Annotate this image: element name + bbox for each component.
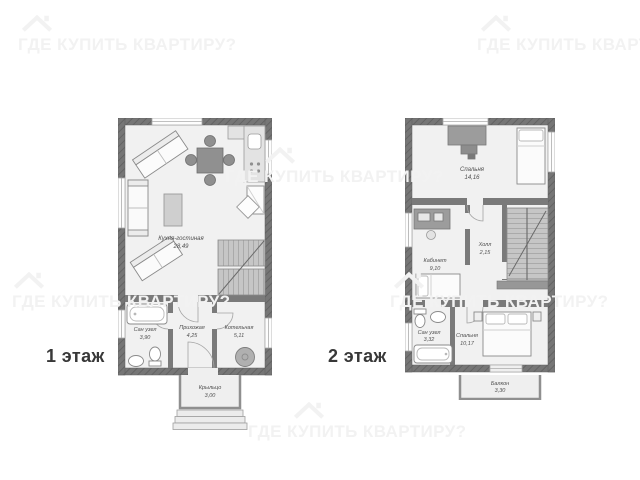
sink	[129, 356, 144, 367]
porch-steps	[173, 410, 247, 430]
svg-text:Котельная: Котельная	[225, 325, 254, 331]
svg-text:Спальня: Спальня	[456, 333, 478, 339]
house-icon	[479, 13, 513, 33]
svg-text:2,15: 2,15	[479, 250, 492, 256]
watermark-text: ГДЕ КУПИТЬ КВАРТИРУ?	[477, 35, 640, 55]
svg-text:14,16: 14,16	[464, 175, 480, 181]
watermark: ГДЕ КУПИТЬ КВАРТИРУ?	[477, 13, 640, 55]
svg-text:4,25: 4,25	[187, 333, 199, 339]
svg-text:28,49: 28,49	[172, 244, 189, 250]
watermark-text: ГДЕ КУПИТЬ КВАРТИРУ?	[18, 35, 236, 55]
house-icon	[20, 13, 54, 33]
toilet	[149, 347, 161, 366]
svg-text:3,90: 3,90	[140, 335, 152, 341]
nightstand	[533, 312, 541, 321]
sofa	[128, 180, 148, 236]
bathtub	[127, 304, 167, 324]
svg-text:Прихожая: Прихожая	[179, 325, 205, 331]
boiler	[236, 348, 255, 367]
dining-chair	[186, 155, 197, 166]
svg-text:Балкон: Балкон	[491, 381, 509, 387]
svg-text:Кухня-гостиная: Кухня-гостиная	[158, 236, 204, 242]
sink	[431, 312, 446, 323]
svg-text:Кабинет: Кабинет	[423, 258, 446, 264]
porch	[173, 375, 247, 430]
svg-text:5,11: 5,11	[234, 333, 244, 339]
desk-chair	[427, 231, 436, 240]
watermark-text: ГДЕ КУПИТЬ КВАРТИРУ?	[248, 422, 466, 442]
dining-chair	[205, 136, 216, 147]
svg-text:10,17: 10,17	[460, 341, 475, 347]
coffee-table	[164, 194, 182, 226]
bed-study	[416, 274, 460, 298]
bed-bedroom2	[474, 312, 541, 356]
svg-text:3,32: 3,32	[424, 337, 435, 343]
house-icon	[292, 400, 326, 420]
balcony	[460, 375, 540, 399]
dining-chair	[205, 175, 216, 186]
floor2-label: 2 этаж	[328, 346, 387, 367]
nightstand	[474, 312, 482, 321]
toilet	[414, 309, 426, 328]
house-icon	[12, 270, 46, 290]
stairs-landing	[497, 281, 548, 289]
svg-text:Сан узел: Сан узел	[418, 330, 441, 336]
dining-chair	[224, 155, 235, 166]
floor1-plan: Кухня-гостиная 28,49 Сан узел 3,90 Прихо…	[118, 118, 272, 430]
svg-text:Крыльцо: Крыльцо	[199, 385, 222, 391]
bed-bedroom1	[517, 128, 545, 184]
svg-text:9,10: 9,10	[430, 266, 442, 272]
watermark: ГДЕ КУПИТЬ КВАРТИРУ?	[248, 400, 466, 442]
watermark: ГДЕ КУПИТЬ КВАРТИРУ?	[18, 13, 236, 55]
bathtub	[414, 345, 452, 363]
svg-text:3,00: 3,00	[205, 393, 217, 399]
svg-text:Спальня: Спальня	[460, 167, 485, 173]
floor2-plan: Спальня 14,16 Кабинет 9,10 Холл 2,15 Сан…	[405, 118, 555, 400]
kitchen-sink	[248, 134, 261, 149]
svg-text:Холл: Холл	[478, 242, 492, 248]
page: Кухня-гостиная 28,49 Сан узел 3,90 Прихо…	[0, 0, 640, 480]
floor1-label: 1 этаж	[46, 346, 105, 367]
svg-text:Сан узел: Сан узел	[134, 327, 157, 333]
tv-unit	[461, 145, 477, 154]
svg-text:3,30: 3,30	[495, 388, 507, 394]
